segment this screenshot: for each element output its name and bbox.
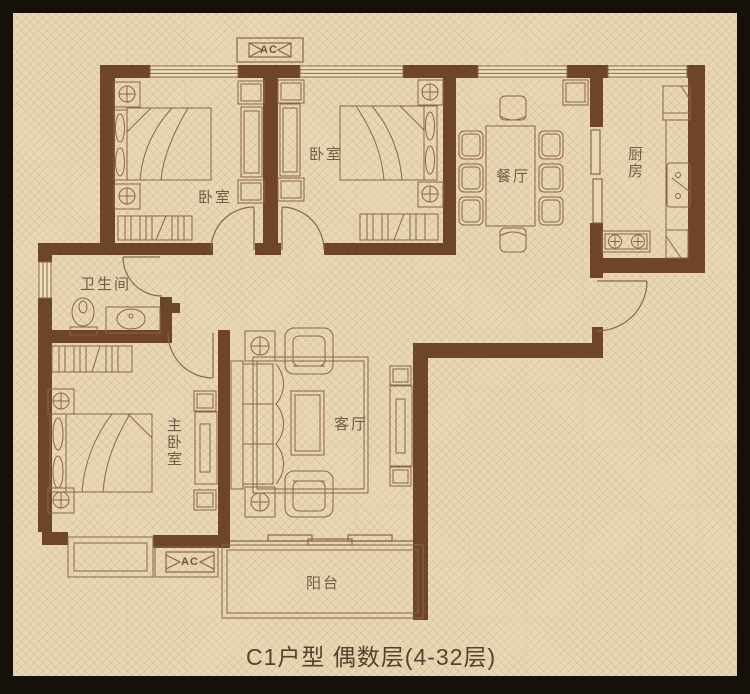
living-furniture <box>231 328 412 517</box>
kitchen-sink <box>667 163 690 207</box>
tv-stand <box>194 391 217 510</box>
nightstand <box>418 80 443 105</box>
kitchen-fixtures <box>602 86 690 258</box>
bedroom2-furniture <box>278 80 443 240</box>
kitchen-sliding-door <box>591 130 602 223</box>
sideboard-cabinet <box>563 80 588 105</box>
bathroom-fixtures <box>70 298 160 335</box>
master-furniture <box>48 346 217 513</box>
balcony-label: 阳台 <box>306 576 340 591</box>
bed <box>50 414 152 492</box>
floor-plan-image: 卧室 卧室 餐厅 厨房 卫生间 主卧室 客厅 阳台 AC AC C1户型 偶数层… <box>0 0 750 694</box>
bedroom2-door <box>282 207 324 250</box>
nightstand <box>418 182 443 207</box>
toilet <box>70 298 97 335</box>
bedroom1-label: 卧室 <box>198 190 232 205</box>
ac-top-label: AC <box>260 45 278 56</box>
nightstand <box>114 82 140 107</box>
wardrobe <box>238 81 264 203</box>
dining-label: 餐厅 <box>496 169 530 184</box>
bedroom1-furniture <box>114 81 264 240</box>
entry-door <box>597 281 647 331</box>
dining-furniture <box>459 80 588 252</box>
fridge <box>663 86 690 120</box>
bookshelf <box>52 346 132 372</box>
nightstand <box>114 184 140 209</box>
master-bedroom-door <box>168 333 213 378</box>
wardrobe <box>278 80 304 201</box>
window-top-bedroom2 <box>300 66 403 77</box>
bedroom1-door <box>211 207 254 250</box>
bed <box>114 108 211 180</box>
bed <box>340 106 437 180</box>
bookshelf <box>118 216 192 240</box>
stove <box>602 231 650 252</box>
armchair <box>285 471 333 517</box>
ac-bottom-label: AC <box>181 557 199 568</box>
window-top-kitchen <box>608 66 687 77</box>
kitchen-label: 厨房 <box>627 146 642 180</box>
window-bathroom <box>39 262 51 298</box>
side-table <box>245 487 275 517</box>
bookshelf <box>360 214 438 240</box>
window-top-bedroom1 <box>150 66 238 77</box>
corner-counter <box>666 230 688 258</box>
master-window-bay <box>68 537 153 577</box>
tv-stand <box>390 366 412 486</box>
balcony-sliding-door <box>230 535 413 545</box>
bathroom-label: 卫生间 <box>80 277 131 292</box>
window-top-dining <box>478 66 567 77</box>
bedroom2-label: 卧室 <box>309 147 343 162</box>
windows <box>39 66 687 298</box>
floor-plan-svg <box>0 0 750 694</box>
armchair <box>285 328 333 374</box>
living-room-label: 客厅 <box>334 417 368 432</box>
plan-caption: C1户型 偶数层(4-32层) <box>246 644 496 672</box>
coffee-table <box>291 391 324 455</box>
bathroom-sink <box>106 307 160 333</box>
master-bedroom-label: 主卧室 <box>166 417 181 468</box>
